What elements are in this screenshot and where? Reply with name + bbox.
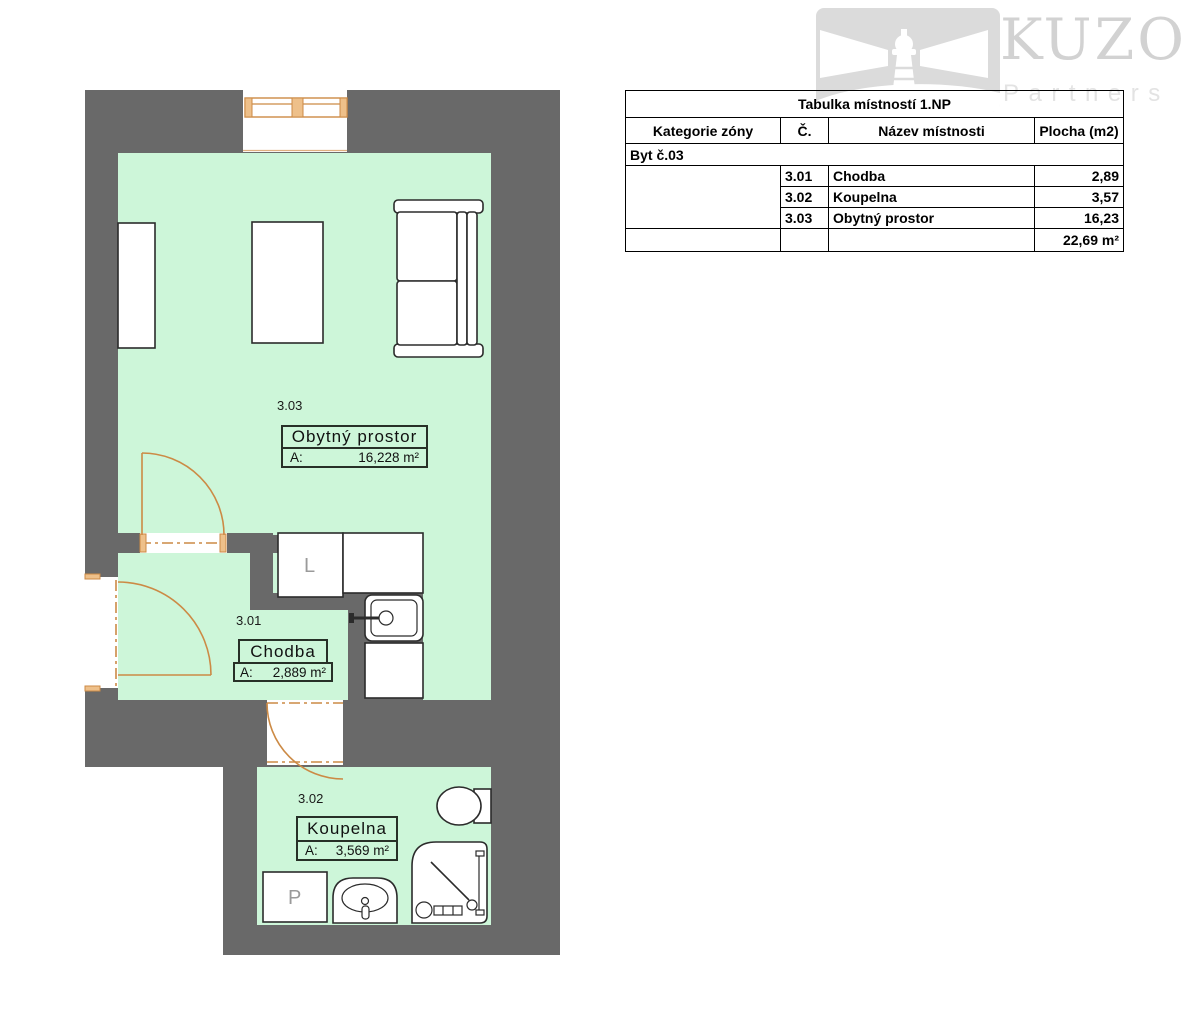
room-name: Chodba <box>250 642 316 662</box>
table-group-row: Byt č.03 <box>626 144 1124 166</box>
interior-wall-sink-strip <box>348 610 367 700</box>
room-living-floor-strip <box>423 535 491 700</box>
room-number: 3.03 <box>277 398 428 413</box>
wardrobe <box>118 223 155 348</box>
area-value: 3,569 m² <box>336 843 389 858</box>
sofa <box>394 200 483 357</box>
total-number-cell <box>781 229 829 252</box>
table-title-row: Tabulka místností 1.NP <box>626 91 1124 118</box>
cell-number: 3.03 <box>781 208 829 229</box>
table-total-row: 22,69 m² <box>626 229 1124 252</box>
cell-area: 16,23 <box>1035 208 1124 229</box>
table-header-row: Kategorie zóny Č. Název místnosti Plocha… <box>626 118 1124 144</box>
brand-name: KUZO <box>1000 12 1187 69</box>
cell-number: 3.02 <box>781 187 829 208</box>
category-cell <box>626 166 781 229</box>
header-area: Plocha (m2) <box>1035 118 1124 144</box>
toilet <box>437 787 491 825</box>
room-name-box: Obytný prostor <box>281 425 428 449</box>
room-table: Tabulka místností 1.NP Kategorie zóny Č.… <box>625 90 1124 252</box>
cell-area: 3,57 <box>1035 187 1124 208</box>
table <box>252 222 323 343</box>
floor-plan-page: { "logo": { "brand": "KUZO", "subtitle":… <box>0 0 1200 1028</box>
table-title: Tabulka místností 1.NP <box>626 91 1124 118</box>
area-prefix: A: <box>290 450 303 465</box>
area-prefix: A: <box>305 843 318 858</box>
washbasin <box>333 878 397 923</box>
room-name: Koupelna <box>307 819 387 839</box>
room-name-box: Koupelna <box>296 816 398 842</box>
total-area: 22,69 m² <box>1035 229 1124 252</box>
room-name-box: Chodba <box>238 639 328 664</box>
header-number: Č. <box>781 118 829 144</box>
cell-name: Obytný prostor <box>829 208 1035 229</box>
room-label-bathroom: 3.02 Koupelna A: 3,569 m² <box>296 791 398 861</box>
group-label: Byt č.03 <box>626 144 1124 166</box>
total-name-cell <box>829 229 1035 252</box>
shower <box>412 842 487 923</box>
cell-name: Chodba <box>829 166 1035 187</box>
floor-plan-drawing: L P <box>0 0 600 1028</box>
washer-label: P <box>288 887 301 909</box>
header-category: Kategorie zóny <box>626 118 781 144</box>
room-number: 3.02 <box>298 791 398 806</box>
cell-area: 2,89 <box>1035 166 1124 187</box>
area-value: 2,889 m² <box>273 665 326 680</box>
cell-name: Koupelna <box>829 187 1035 208</box>
cell-number: 3.01 <box>781 166 829 187</box>
total-category-cell <box>626 229 781 252</box>
fridge-label: L <box>304 555 315 577</box>
room-label-living: 3.03 Obytný prostor A: 16,228 m² <box>281 398 428 468</box>
base-cabinet <box>365 643 423 698</box>
room-name: Obytný prostor <box>292 427 418 447</box>
room-area-box: A: 3,569 m² <box>296 840 398 861</box>
area-value: 16,228 m² <box>358 450 419 465</box>
room-number: 3.01 <box>236 613 333 628</box>
lighthouse-gallery <box>892 49 916 55</box>
counter-top <box>343 533 423 593</box>
room-label-hall: 3.01 Chodba A: 2,889 m² <box>233 613 333 682</box>
room-area-box: A: 16,228 m² <box>281 447 428 468</box>
washing-machine: P <box>263 872 327 922</box>
room-area-box: A: 2,889 m² <box>233 662 333 682</box>
window <box>243 90 347 152</box>
area-prefix: A: <box>240 665 253 680</box>
table-row: 3.01 Chodba 2,89 <box>626 166 1124 187</box>
header-name: Název místnosti <box>829 118 1035 144</box>
